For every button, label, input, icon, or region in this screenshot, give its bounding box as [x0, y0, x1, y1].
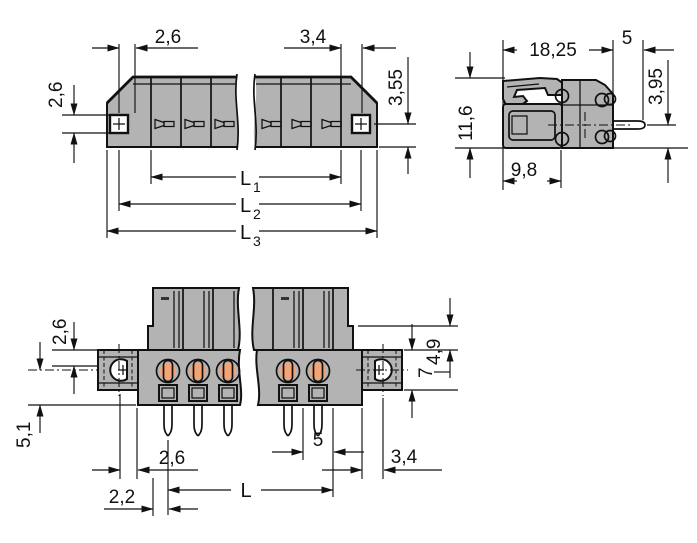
dim-label: 9,8: [511, 160, 537, 181]
dim-label: L: [240, 480, 251, 502]
technical-drawing-page: 2,6 3,4 2,6 3,55: [0, 0, 697, 543]
dim-label: 4,9: [424, 339, 445, 365]
dimension-l1: L 1: [151, 150, 341, 195]
dim-label: 5: [313, 430, 324, 451]
dim-label: 2,2: [109, 487, 135, 508]
front-view: 2,6 5,1 4,9 7: [14, 288, 458, 516]
dim-label-sub: 1: [253, 179, 261, 195]
side-view: 18,25 5 11,6 9,8 3,95: [455, 28, 688, 190]
dim-label: 2,6: [155, 27, 181, 48]
dimension-front-L: L: [168, 440, 333, 515]
break-gap: [236, 74, 256, 150]
dim-label: L: [240, 195, 251, 217]
dimension-116: 11,6: [455, 52, 505, 178]
dimension-front-22: 2,2: [104, 478, 198, 516]
dimension-left-26: 2,6: [46, 82, 110, 163]
coding-notch: [281, 297, 289, 300]
dim-label: 18,25: [529, 40, 577, 61]
solder-pins: [164, 405, 322, 436]
mounting-flange-left: [98, 344, 138, 396]
dimension-5-pin: 5: [622, 28, 674, 50]
dimension-front-34: 3,4: [322, 398, 442, 479]
top-view: 2,6 3,4 2,6 3,55: [46, 27, 416, 249]
mounting-flange-right: [356, 344, 408, 396]
dim-label: 5,1: [14, 422, 35, 448]
dim-label: 5: [622, 28, 633, 49]
dimension-front-26-left: 2,6: [50, 319, 97, 394]
dimension-98: 9,8: [503, 150, 561, 188]
dim-label: L: [240, 168, 251, 190]
coding-notch: [161, 297, 169, 300]
dim-label: 7: [416, 367, 437, 378]
dim-label: 3,4: [300, 27, 327, 48]
dim-label: 2,6: [159, 448, 185, 469]
dim-label: 3,95: [646, 68, 667, 105]
dimension-right-355: 3,55: [374, 57, 416, 174]
dim-label: 2,6: [46, 82, 67, 108]
mounting-hole-left: [110, 115, 128, 133]
dimension-front-26-pin: 2,6: [92, 394, 198, 479]
mounting-hole-right: [352, 115, 370, 133]
dimension-395: 3,95: [646, 60, 676, 183]
dim-label: 3,55: [386, 69, 407, 106]
dim-label: 11,6: [456, 105, 477, 141]
latch-lever: [503, 78, 564, 106]
dimension-1825: 18,25: [503, 40, 613, 61]
dim-label-sub: 3: [253, 233, 261, 249]
dim-label: L: [240, 222, 251, 244]
dim-label-sub: 2: [253, 206, 261, 222]
dimension-front-5: 5: [272, 408, 364, 497]
connector-dimension-drawing: 2,6 3,4 2,6 3,55: [0, 0, 697, 543]
dim-label: 2,6: [50, 319, 71, 345]
dim-label: 3,4: [391, 447, 418, 468]
